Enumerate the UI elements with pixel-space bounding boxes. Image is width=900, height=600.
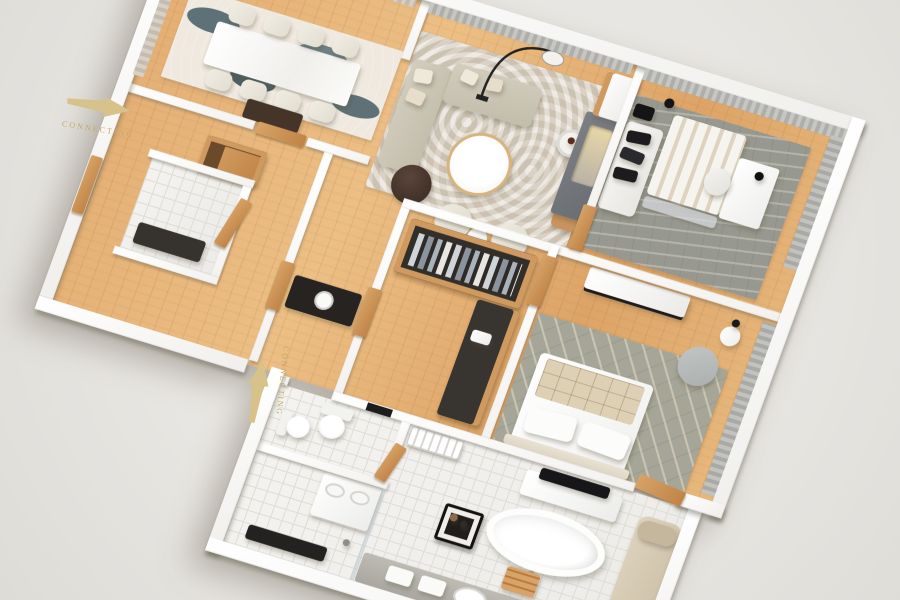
connecting-arrow-up-icon [239,355,276,426]
connecting-label-south: CONNECTING [274,346,290,417]
apartment-plan [0,0,861,600]
connecting-indicator-south: CONNECTING [238,338,298,442]
sofa-pillow [413,68,434,84]
floorplan-render: CONNECTING CONNECTING [0,0,900,600]
